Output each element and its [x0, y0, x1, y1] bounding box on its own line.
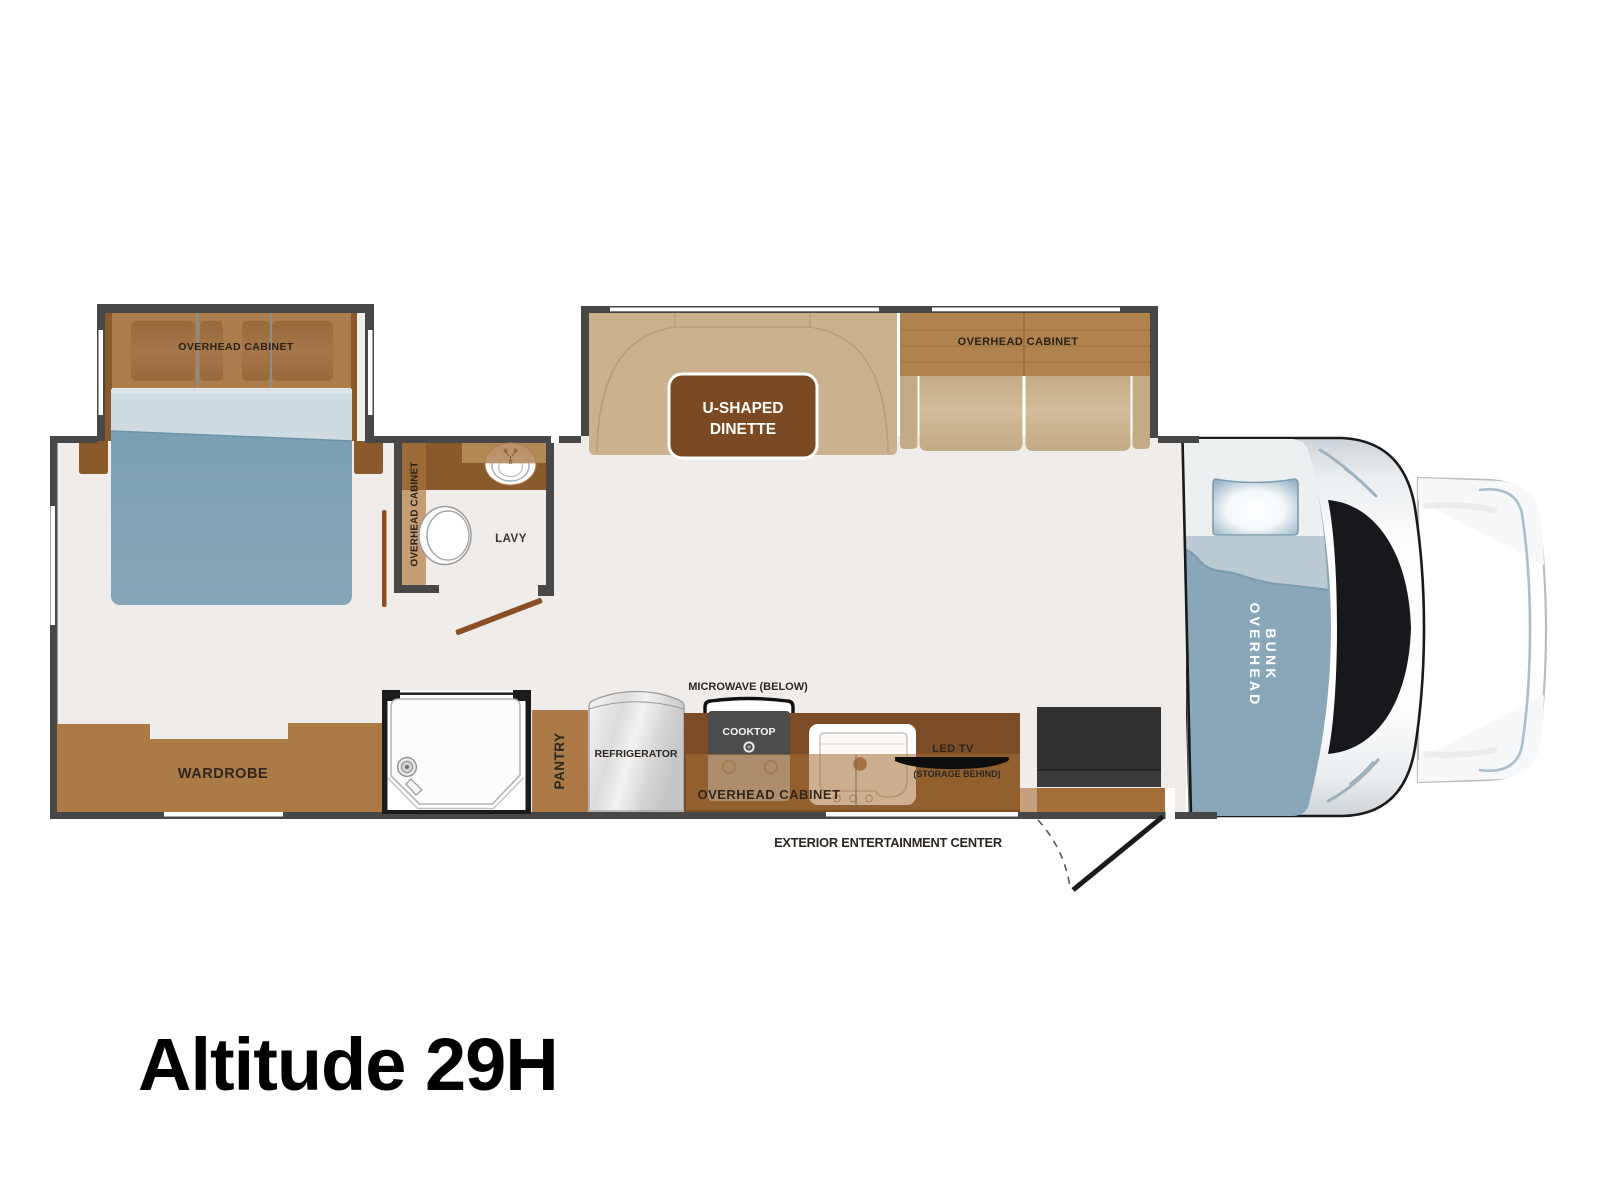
- svg-text:MICROWAVE (BELOW): MICROWAVE (BELOW): [688, 681, 808, 693]
- svg-text:OVERHEAD CABINET: OVERHEAD CABINET: [410, 462, 421, 567]
- svg-text:OVERHEAD CABINET: OVERHEAD CABINET: [697, 787, 840, 802]
- svg-text:EXTERIOR ENTERTAINMENT CENTER: EXTERIOR ENTERTAINMENT CENTER: [774, 835, 1002, 850]
- svg-text:WARDROBE: WARDROBE: [178, 766, 268, 782]
- svg-text:REFRIGERATOR: REFRIGERATOR: [594, 748, 677, 760]
- svg-text:LAVY: LAVY: [495, 533, 527, 545]
- svg-text:OVERHEAD CABINET: OVERHEAD CABINET: [958, 336, 1079, 348]
- svg-text:BUNK: BUNK: [1263, 628, 1279, 681]
- svg-text:DINETTE: DINETTE: [710, 421, 776, 438]
- svg-text:OVERHEAD CABINET: OVERHEAD CABINET: [178, 341, 294, 353]
- svg-text:OVERHEAD: OVERHEAD: [1247, 603, 1263, 708]
- svg-text:(STORAGE BEHIND): (STORAGE BEHIND): [913, 769, 1000, 779]
- svg-text:Altitude 29H: Altitude 29H: [138, 1023, 558, 1106]
- svg-text:COOKTOP: COOKTOP: [723, 726, 776, 738]
- svg-text:LED TV: LED TV: [932, 743, 974, 755]
- svg-text:U-SHAPED: U-SHAPED: [703, 400, 784, 417]
- svg-text:PANTRY: PANTRY: [552, 733, 567, 790]
